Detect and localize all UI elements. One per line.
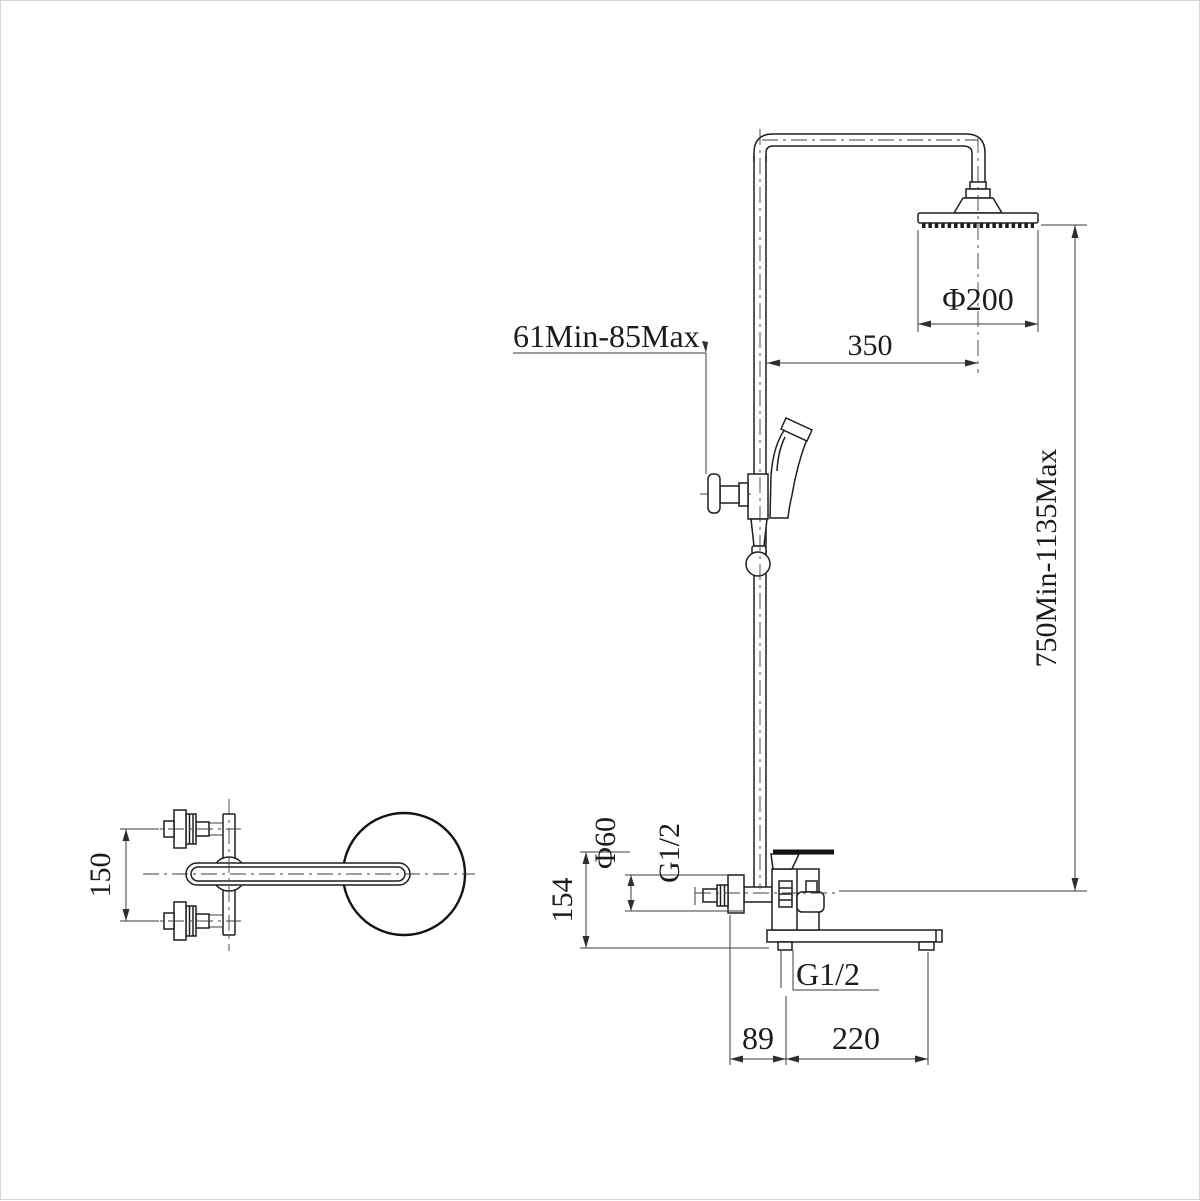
arrowhead — [730, 1056, 743, 1063]
dim-text-flange-diameter: Φ60 — [589, 817, 622, 869]
check-valve-stub — [703, 889, 717, 902]
dim-text-spout-back-offset: 89 — [742, 1020, 774, 1056]
bracket-shaft — [720, 486, 739, 503]
wall-flange — [728, 875, 744, 913]
hose-ball-joint — [746, 552, 770, 576]
label-text-outlet-thread: G1/2 — [796, 956, 860, 992]
dim-height-range: 750Min-1135Max — [839, 225, 1087, 891]
arrowhead — [767, 360, 780, 367]
aerator — [919, 942, 934, 950]
technical-drawing-canvas: Φ200 350 61Min-85Max 750Min-1135Max Φ60 … — [0, 0, 1200, 1200]
dim-head-offset: 350 — [767, 329, 978, 367]
arrowhead — [773, 1056, 786, 1063]
hand-shower-body — [770, 429, 807, 518]
arrowhead — [123, 829, 130, 841]
label-outlet-thread: G1/2 — [781, 950, 879, 992]
arrowhead — [786, 1056, 799, 1063]
dim-slider-range: 61Min-85Max — [513, 318, 708, 474]
dim-text-slider-range: 61Min-85Max — [513, 318, 700, 354]
front-view-centerlines — [695, 129, 978, 893]
arrowhead — [965, 360, 978, 367]
arrowhead — [628, 875, 635, 886]
arrowhead — [1072, 225, 1079, 238]
label-text-inlet-thread: G1/2 — [653, 823, 686, 883]
arrowhead — [1072, 878, 1079, 891]
arrowhead — [583, 936, 590, 948]
handle-base — [771, 854, 799, 869]
dim-text-head-offset: 350 — [848, 329, 893, 362]
top-view — [139, 799, 475, 951]
tub-spout — [767, 930, 942, 942]
dim-text-spout-reach: 220 — [832, 1020, 880, 1056]
bracket-clamp — [748, 474, 768, 519]
diverter-knob — [797, 892, 824, 912]
inlet-hex-nut — [717, 885, 728, 906]
dim-text-faucet-height: 154 — [546, 878, 579, 923]
shower-arm-inner — [766, 146, 972, 182]
bottom-outlet — [778, 942, 792, 950]
arrowhead — [915, 1056, 928, 1063]
arrowhead — [1025, 321, 1038, 328]
diverter-stem — [806, 881, 817, 892]
hand-shower-assembly — [700, 418, 812, 576]
shower-arm — [754, 134, 985, 182]
arrowhead — [918, 321, 931, 328]
hand-shower-holder-cone — [751, 519, 767, 546]
arrowhead — [123, 909, 130, 921]
dim-text-inlet-spacing: 150 — [84, 853, 117, 898]
bracket-hub — [739, 483, 748, 506]
dim-text-head-diameter: Φ200 — [942, 281, 1013, 317]
drawing-svg: Φ200 350 61Min-85Max 750Min-1135Max Φ60 … — [1, 1, 1200, 1201]
dim-text-height-range: 750Min-1135Max — [1030, 449, 1063, 668]
bracket-knob — [708, 474, 720, 513]
arrowhead — [702, 341, 708, 353]
shower-arm-outer — [754, 134, 985, 182]
arrowhead — [628, 900, 635, 911]
mixer-faucet — [703, 852, 942, 950]
dim-inlet-spacing: 150 — [84, 829, 159, 921]
inlet-connector-pipe — [744, 887, 772, 902]
label-inlet-thread: G1/2 — [653, 823, 695, 905]
